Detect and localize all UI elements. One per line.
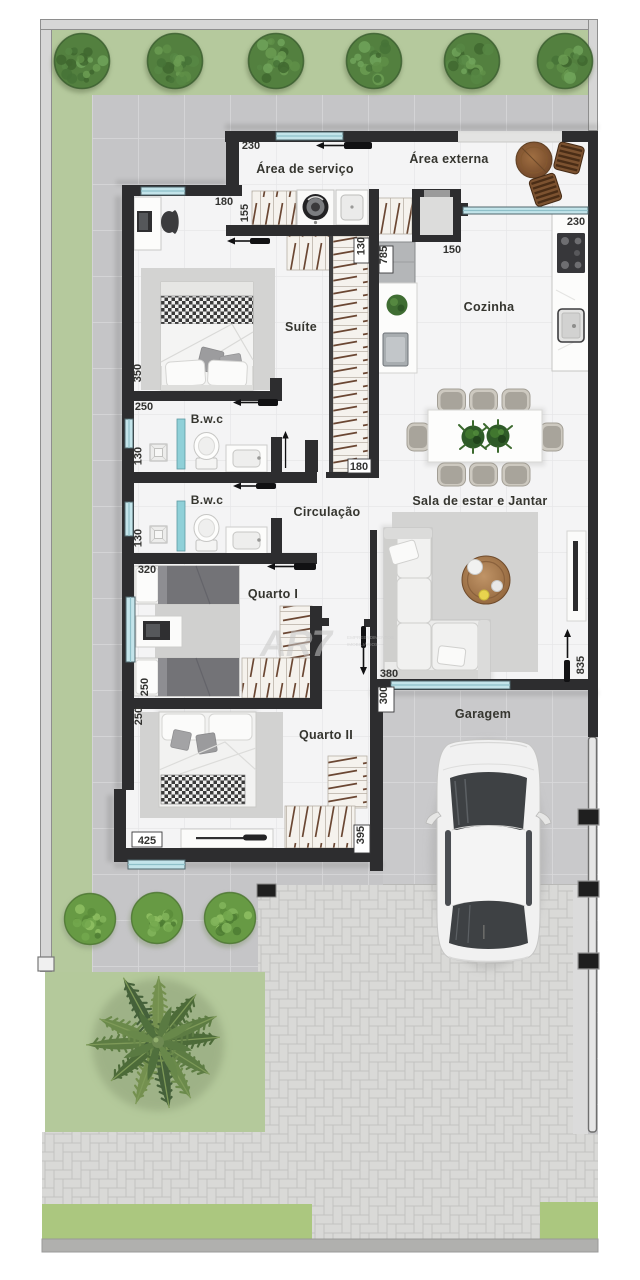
svg-text:130: 130 [356,237,368,255]
svg-text:Quarto II: Quarto II [299,728,353,742]
svg-text:B.w.c: B.w.c [191,412,223,426]
svg-text:180: 180 [350,461,368,473]
svg-text:130: 130 [133,447,145,465]
svg-text:Área de serviço: Área de serviço [256,161,354,176]
svg-text:Suíte: Suíte [285,320,317,334]
svg-text:250: 250 [139,678,151,696]
svg-text:B.w.c: B.w.c [191,493,223,507]
svg-text:380: 380 [380,668,398,680]
svg-text:150: 150 [443,244,461,256]
svg-text:IMOBILIÁRIOS: IMOBILIÁRIOS [347,641,378,647]
svg-text:425: 425 [138,835,156,847]
svg-text:835: 835 [575,656,587,674]
svg-text:320: 320 [138,564,156,576]
svg-text:180: 180 [215,196,233,208]
svg-text:Garagem: Garagem [455,707,511,721]
svg-text:Área externa: Área externa [409,151,489,166]
svg-text:350: 350 [132,364,144,382]
svg-text:Quarto I: Quarto I [248,587,298,601]
svg-text:AR7: AR7 [259,623,334,664]
svg-text:250: 250 [135,401,153,413]
svg-text:395: 395 [355,826,367,844]
svg-text:130: 130 [133,529,145,547]
svg-text:Circulação: Circulação [294,505,361,519]
svg-text:250: 250 [133,707,145,725]
svg-text:Cozinha: Cozinha [464,300,515,314]
svg-text:785: 785 [378,246,390,264]
svg-text:230: 230 [567,216,585,228]
svg-text:155: 155 [239,204,251,222]
svg-text:Sala de estar e Jantar: Sala de estar e Jantar [412,494,547,508]
svg-text:230: 230 [242,140,260,152]
svg-text:EMPREENDIMENTOS: EMPREENDIMENTOS [347,635,394,640]
svg-text:300: 300 [378,686,390,704]
